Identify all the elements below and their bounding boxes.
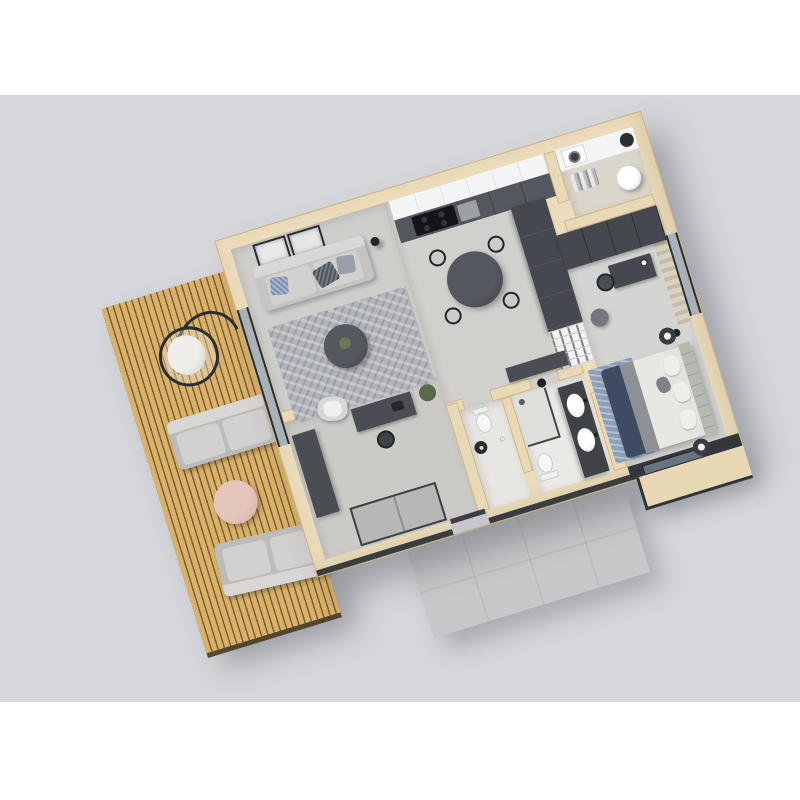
floor-plan-render <box>0 0 800 800</box>
desk-radio <box>391 400 405 412</box>
lounge-chair-throw <box>323 400 342 417</box>
faucet <box>593 432 598 437</box>
oven-front <box>457 200 481 222</box>
plant-on-table <box>337 336 352 351</box>
nightstand-lamp <box>697 443 706 452</box>
sofa-pillow-blue <box>270 276 290 296</box>
wc-basin-faucet <box>479 445 484 450</box>
shower-head <box>518 398 525 405</box>
nightstand-lamp <box>663 332 672 341</box>
faucet <box>583 398 588 403</box>
side-table-pink <box>208 475 263 530</box>
vessel-sink <box>564 392 587 420</box>
bed-pillow <box>679 408 697 430</box>
lounge-chair <box>317 396 348 422</box>
vessel-sink <box>575 426 598 454</box>
desk-lamp <box>640 258 649 267</box>
washer-door <box>567 149 582 164</box>
hanging-egg-chair <box>137 300 245 416</box>
wardrobe-door-split <box>393 496 405 531</box>
sofa-pillow-grey <box>336 254 357 275</box>
